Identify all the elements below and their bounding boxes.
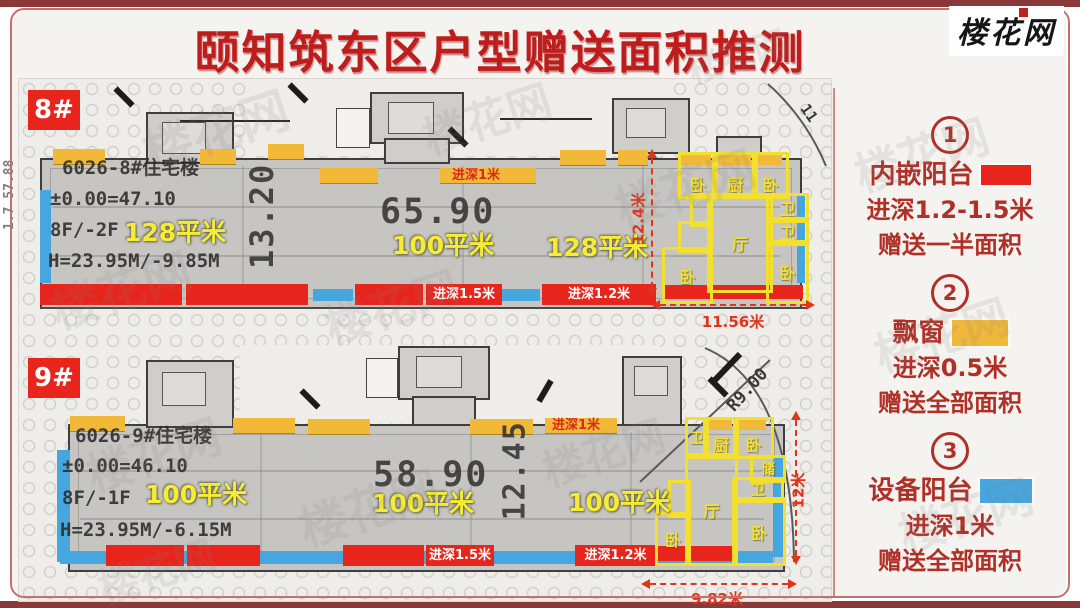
plan8-area-left: 128平米 [124,213,226,249]
plan8-label: 8# [28,90,80,130]
bottom-border-strip [0,601,1080,608]
bay-window-bar [200,149,236,165]
legend-index-text: 1 [943,123,958,147]
bay-depth-label: 进深1米 [452,168,500,183]
legend-panel: 1 内嵌阳台 进深1.2-1.5米 赠送一半面积 2 飘窗 进深0.5米 赠送全… [836,86,1064,598]
inset-balcony-bar: 进深1.5米 [426,284,502,305]
inset-balcony-bar: 进深1.2米 [575,545,656,566]
unit-width-arrow [660,304,806,306]
room-label: 储 [761,459,775,479]
bay-window-bar [233,418,295,434]
plan9-building-name: 6026-9#住宅楼 [75,421,212,448]
unit-width-dim: 11.56米 [678,311,788,332]
room-bedroom: 卧 [733,417,774,459]
legend-index-2: 2 [931,274,969,312]
plan8-stair-tower [370,92,464,144]
inset-balcony-bar: 进深1.5米 [426,545,494,566]
room-corridor [668,480,691,518]
plan9-height: H=23.95M/-6.15M [60,519,232,541]
plan8-height: H=23.95M/-9.85M [48,250,220,272]
bay-window-bar [560,150,606,166]
room-hall: 厅 [707,193,773,293]
room-corridor [678,221,713,253]
inset-balcony-bar [355,284,423,305]
legend-item-name: 内嵌阳台 [869,158,973,192]
legend-gift: 赠送全部面积 [836,387,1064,420]
plan9-area-left: 100平米 [145,475,247,511]
room-bedroom: 卧 [732,497,786,566]
plan8-stair-tower [612,98,690,154]
room-label: 卧 [665,527,681,551]
room-bedroom: 卧 [662,247,713,304]
legend-depth: 进深0.5米 [836,352,1064,385]
room-label: 卧 [745,432,761,456]
legend-divider [833,88,835,596]
plan9-stair-tower [146,360,234,428]
red-swatch [981,165,1031,185]
legend-item-name: 设备阳台 [868,474,972,508]
bay-depth-label: 进深1米 [552,418,600,433]
plan9-depth-dim: 12.45 [498,431,533,521]
room-label: 卧 [751,520,767,544]
plan9-stair-tower [412,396,476,426]
plan8-annex-box [336,108,370,148]
inset-balcony-bar: 进深1.2米 [542,284,656,305]
plan8-side-note: 1.7 57.88 [2,160,17,230]
dimension-line [180,120,290,122]
plan9-stair-tower [398,346,490,400]
inset-balcony-bar [106,545,184,566]
unit-depth-dim: 12.4米 [628,189,649,249]
plan9-label: 9# [28,358,80,398]
plan9-area-mid: 100平米 [372,484,474,520]
unit-depth-dim: 12米 [788,469,809,513]
plan9-elevation: ±0.00=46.10 [62,455,188,477]
plan8-floors: 8F/-2F [50,219,119,241]
page-title: 颐知筑东区户型赠送面积推测 [0,16,1000,81]
inset-balcony-bar [343,545,424,566]
equipment-balcony-bar [502,289,540,301]
room-hall: 厅 [685,453,738,566]
plan9-area-right: 100平米 [568,483,670,519]
legend-index-text: 2 [943,281,958,305]
legend-index-text: 3 [943,439,958,463]
unit-depth-arrow [651,158,653,288]
inset-balcony-bar [40,284,182,305]
legend-gift: 赠送一半面积 [836,229,1064,262]
room-bedroom: 卧 [655,512,691,566]
room-label: 厅 [703,498,719,522]
unit-width-dim: 9.82米 [662,588,772,608]
blue-swatch [980,479,1032,503]
room-label: 卫 [690,428,704,448]
legend-gift: 赠送全部面积 [836,545,1064,578]
plan9-annex-box [366,358,398,398]
room-bedroom: 卧 [766,240,809,304]
inset-balcony-bar [187,545,260,566]
legend-depth: 进深1.2-1.5米 [836,194,1064,227]
poster-canvas: 颐知筑东区户型赠送面积推测 楼花网 8# 进深1米 进深1.5米 进深1.2米 [0,0,1080,608]
bay-window-bar [268,144,304,160]
logo-seal-icon [1019,8,1028,17]
legend-depth: 进深1米 [836,510,1064,543]
inset-balcony-bar [186,284,308,305]
plan8-building-name: 6026-8#住宅楼 [62,153,199,180]
plan8-stair-tower [384,138,450,164]
yellow-swatch [952,320,1008,346]
plan9-floors: 8F/-1F [62,487,131,509]
brand-logo: 楼花网 [949,6,1064,56]
equipment-balcony-bar [313,289,353,301]
dimension-line [500,118,592,120]
legend-index-3: 3 [931,432,969,470]
legend-index-1: 1 [931,116,969,154]
plan8-elevation: ±0.00=47.10 [50,188,176,210]
room-bedroom: 卧 [752,152,789,199]
room-label: 厅 [732,231,748,255]
plan8-depth-dim: 13.20 [243,169,281,269]
top-border-strip [0,0,1080,7]
plan8-area-mid: 100平米 [392,226,494,262]
bay-window-bar [618,150,648,166]
legend-item-name: 飘窗 [892,316,944,350]
room-label: 卧 [779,260,795,284]
room-label: 卧 [679,264,695,288]
bay-window-bar [308,419,370,435]
bay-window-bar [320,168,378,184]
unit-width-arrow [650,583,788,585]
slab-edge-line [40,307,806,309]
